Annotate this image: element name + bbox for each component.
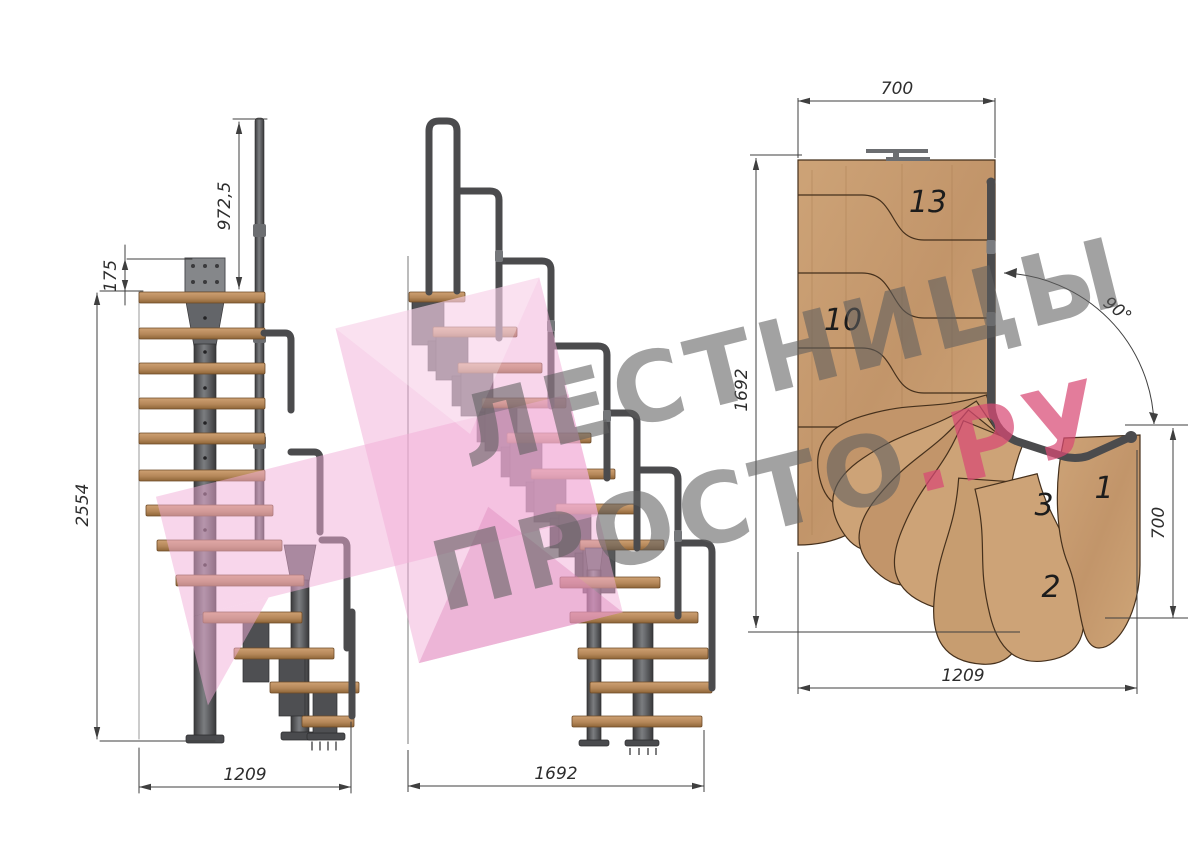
stair-drawing-page: 972,5 175 2554 1209 [0,0,1200,849]
front-width-label: 1209 [223,765,266,785]
plan-top-width-label: 700 [881,79,913,99]
front-wall-plate [185,258,225,292]
side-length-label: 1692 [534,764,577,784]
plan-step-2: 2 [1041,570,1060,605]
plan-step-1: 1 [1094,471,1113,506]
front-total-height-label: 2554 [73,483,93,526]
front-top-offset-label: 175 [101,260,121,292]
plan-right-height-label: 700 [1149,507,1169,539]
plan-step-3: 3 [1034,488,1053,523]
plan-dim-top-width: 700 [798,79,995,158]
front-handrail-height-label: 972,5 [215,182,235,231]
plan-bottom-width-label: 1209 [941,666,984,686]
stair-drawing: 972,5 175 2554 1209 [0,0,1200,849]
side-dim-length: 1692 [408,730,704,792]
plan-step-13: 13 [909,185,947,220]
front-view: 972,5 175 2554 1209 [73,118,359,793]
plan-wall-bracket [866,149,930,161]
